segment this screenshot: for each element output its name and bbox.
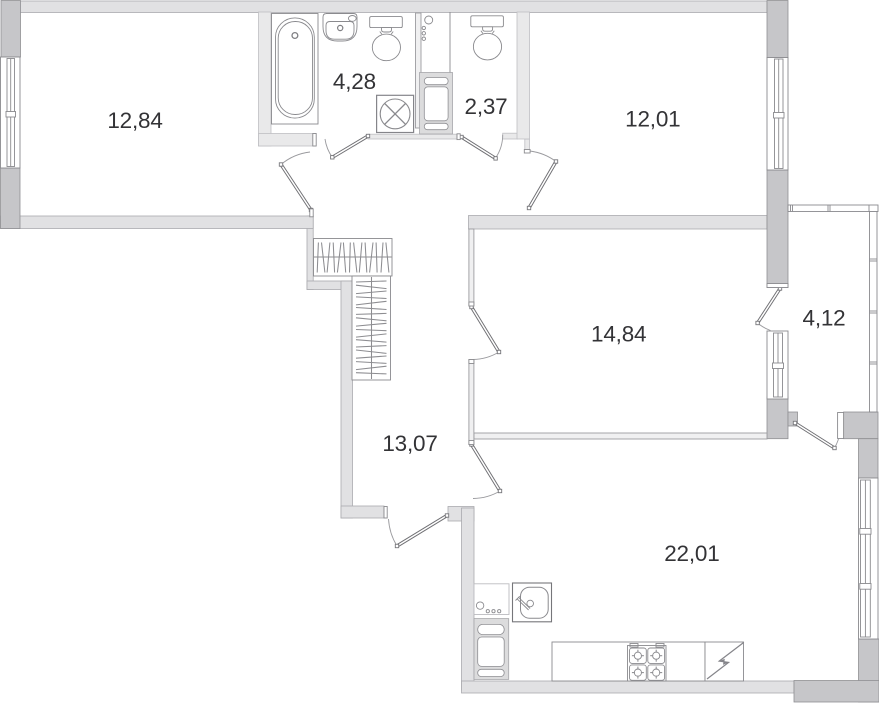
svg-text:4,28: 4,28: [333, 69, 376, 94]
svg-text:4,12: 4,12: [803, 306, 846, 331]
svg-text:12,84: 12,84: [107, 108, 162, 133]
svg-text:13,07: 13,07: [382, 431, 437, 456]
svg-text:14,84: 14,84: [591, 322, 646, 347]
svg-text:12,01: 12,01: [625, 106, 680, 131]
svg-text:2,37: 2,37: [465, 94, 508, 119]
svg-text:22,01: 22,01: [664, 541, 719, 566]
